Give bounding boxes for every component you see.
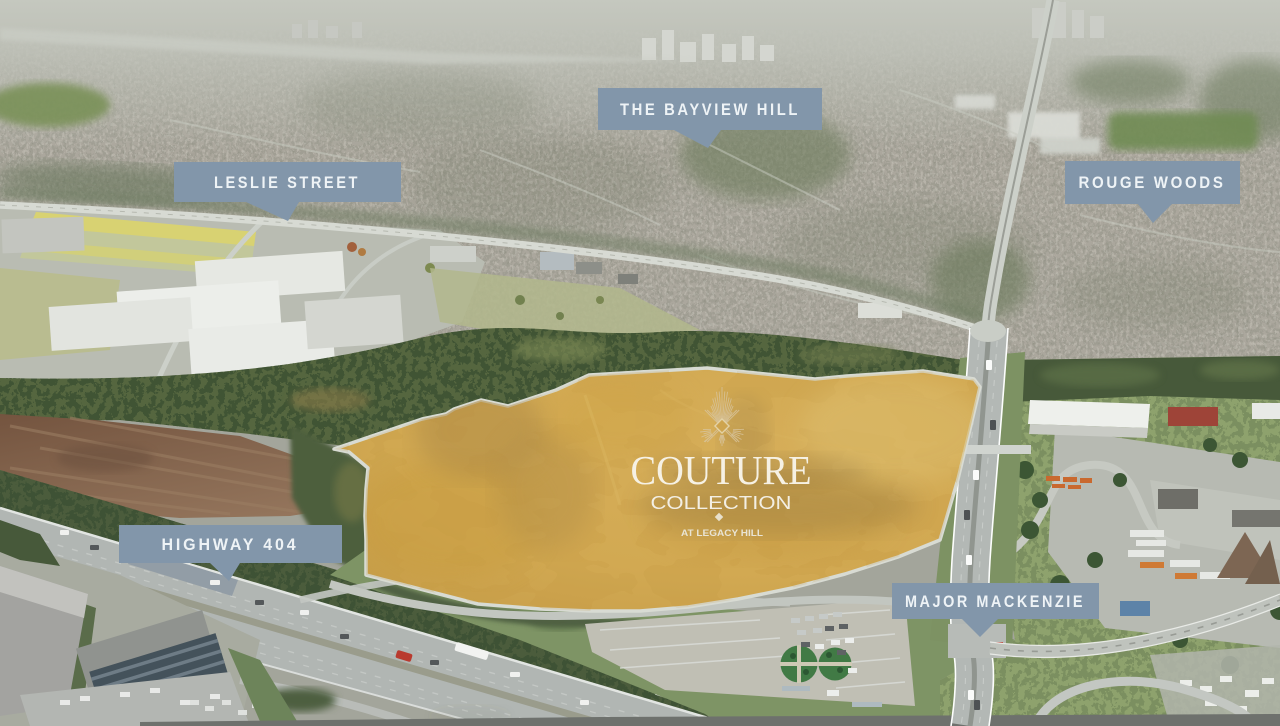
svg-text:COLLECTION: COLLECTION — [651, 493, 792, 513]
svg-text:LESLIE STREET: LESLIE STREET — [214, 173, 360, 192]
svg-text:ROUGE WOODS: ROUGE WOODS — [1079, 173, 1226, 192]
svg-text:THE BAYVIEW HILL: THE BAYVIEW HILL — [620, 100, 800, 119]
svg-text:HIGHWAY 404: HIGHWAY 404 — [162, 535, 299, 554]
svg-text:MAJOR MACKENZIE: MAJOR MACKENZIE — [905, 592, 1085, 611]
svg-text:AT LEGACY HILL: AT LEGACY HILL — [681, 528, 763, 539]
svg-text:COUTURE: COUTURE — [631, 447, 812, 493]
